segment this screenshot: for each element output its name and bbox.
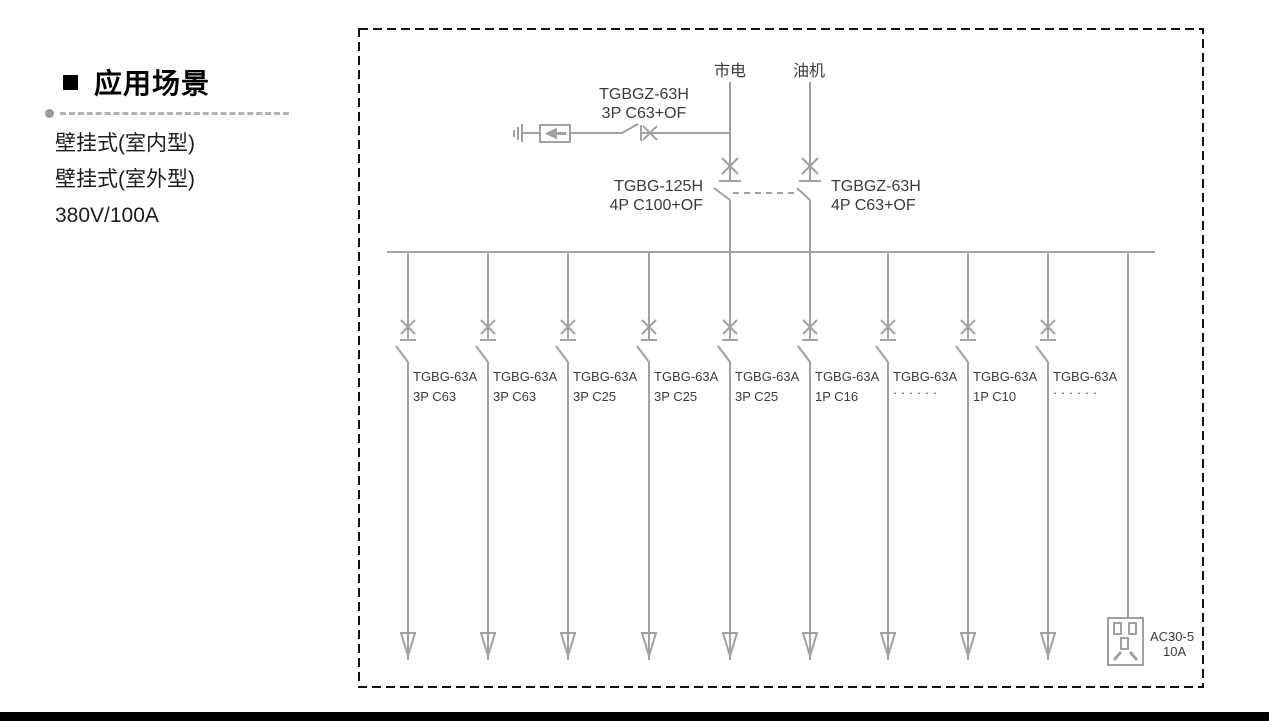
feeder-branch-5: TGBG-63A 3P C25	[718, 252, 800, 660]
page: 应用场景 壁挂式(室内型) 壁挂式(室外型) 380V/100A	[0, 0, 1269, 721]
spd-breaker-blade	[622, 124, 638, 133]
branch-model-label: TGBG-63A	[573, 369, 638, 384]
socket-pin-right-icon	[1129, 623, 1136, 634]
branch-model-label: TGBG-63A	[893, 369, 958, 384]
socket-pin-left-icon	[1114, 623, 1121, 634]
socket-rating-label: 10A	[1163, 644, 1186, 659]
source-mains-label: 市电	[714, 62, 746, 80]
branch-model-label: TGBG-63A	[973, 369, 1038, 384]
socket-slot-right-icon	[1130, 652, 1137, 660]
branch-spec-label: 1P C16	[815, 389, 858, 404]
source-generator-label: 油机	[793, 62, 825, 80]
breaker-blade	[876, 346, 888, 362]
branch-spec-label: 3P C63	[493, 389, 536, 404]
one-line-diagram: TGBG-63A 3P C63 TGBG-63A 3P C63	[0, 0, 1269, 721]
feeder-branch-4: TGBG-63A 3P C25	[637, 252, 719, 660]
branch-model-label: TGBG-63A	[815, 369, 880, 384]
main-breaker-mains-symbol	[714, 158, 741, 252]
feeder-branch-6: TGBG-63A 1P C16	[798, 252, 880, 660]
branch-model-label: TGBG-63A	[735, 369, 800, 384]
feeder-branch-8: TGBG-63A 1P C10	[956, 252, 1038, 660]
breaker-blade	[1036, 346, 1048, 362]
spd-breaker-model-label: TGBGZ-63H	[599, 86, 689, 103]
feeder-branch-2: TGBG-63A 3P C63	[476, 252, 558, 660]
branch-spec-label: 3P C63	[413, 389, 456, 404]
branch-spec-label: 3P C25	[735, 389, 778, 404]
breaker-blade	[797, 188, 810, 200]
breaker-blade	[396, 346, 408, 362]
breaker-blade	[556, 346, 568, 362]
branch-spec-label: · · · · · ·	[893, 385, 937, 400]
feeder-branch-7: TGBG-63A · · · · · ·	[876, 252, 958, 660]
breaker-blade	[476, 346, 488, 362]
branch-model-label: TGBG-63A	[493, 369, 558, 384]
breaker-blade	[956, 346, 968, 362]
breaker-blade	[637, 346, 649, 362]
feeder-branch-9: TGBG-63A · · · · · ·	[1036, 252, 1118, 660]
main-breaker-mains-spec-label: 4P C100+OF	[609, 197, 703, 214]
spd-arrow-icon	[545, 128, 557, 140]
branch-spec-label: · · · · · ·	[1053, 385, 1097, 400]
branch-spec-label: 1P C10	[973, 389, 1016, 404]
spd-breaker-spec-label: 3P C63+OF	[602, 105, 687, 122]
breaker-blade	[718, 346, 730, 362]
main-breaker-generator-spec-label: 4P C63+OF	[831, 197, 916, 214]
branch-spec-label: 3P C25	[573, 389, 616, 404]
main-breaker-mains-model-label: TGBG-125H	[614, 178, 703, 195]
branch-model-label: TGBG-63A	[1053, 369, 1118, 384]
branch-model-label: TGBG-63A	[413, 369, 478, 384]
schematic-wires: TGBG-63A 3P C63 TGBG-63A 3P C63	[387, 82, 1155, 665]
branch-model-label: TGBG-63A	[654, 369, 719, 384]
main-breaker-generator-model-label: TGBGZ-63H	[831, 178, 921, 195]
socket-pin-center-icon	[1121, 638, 1128, 649]
socket-model-label: AC30-5	[1150, 629, 1194, 644]
feeder-branch-1: TGBG-63A 3P C63	[396, 252, 478, 660]
schematic-labels: 市电 油机 TGBGZ-63H 3P C63+OF TGBG-125H 4P C…	[599, 62, 1194, 659]
socket-branch	[1108, 252, 1143, 665]
breaker-blade	[714, 188, 730, 200]
bottom-divider-bar	[0, 712, 1269, 721]
branch-spec-label: 3P C25	[654, 389, 697, 404]
feeder-branch-3: TGBG-63A 3P C25	[556, 252, 638, 660]
spd-branch	[514, 124, 730, 142]
socket-slot-left-icon	[1114, 652, 1121, 660]
breaker-blade	[798, 346, 810, 362]
